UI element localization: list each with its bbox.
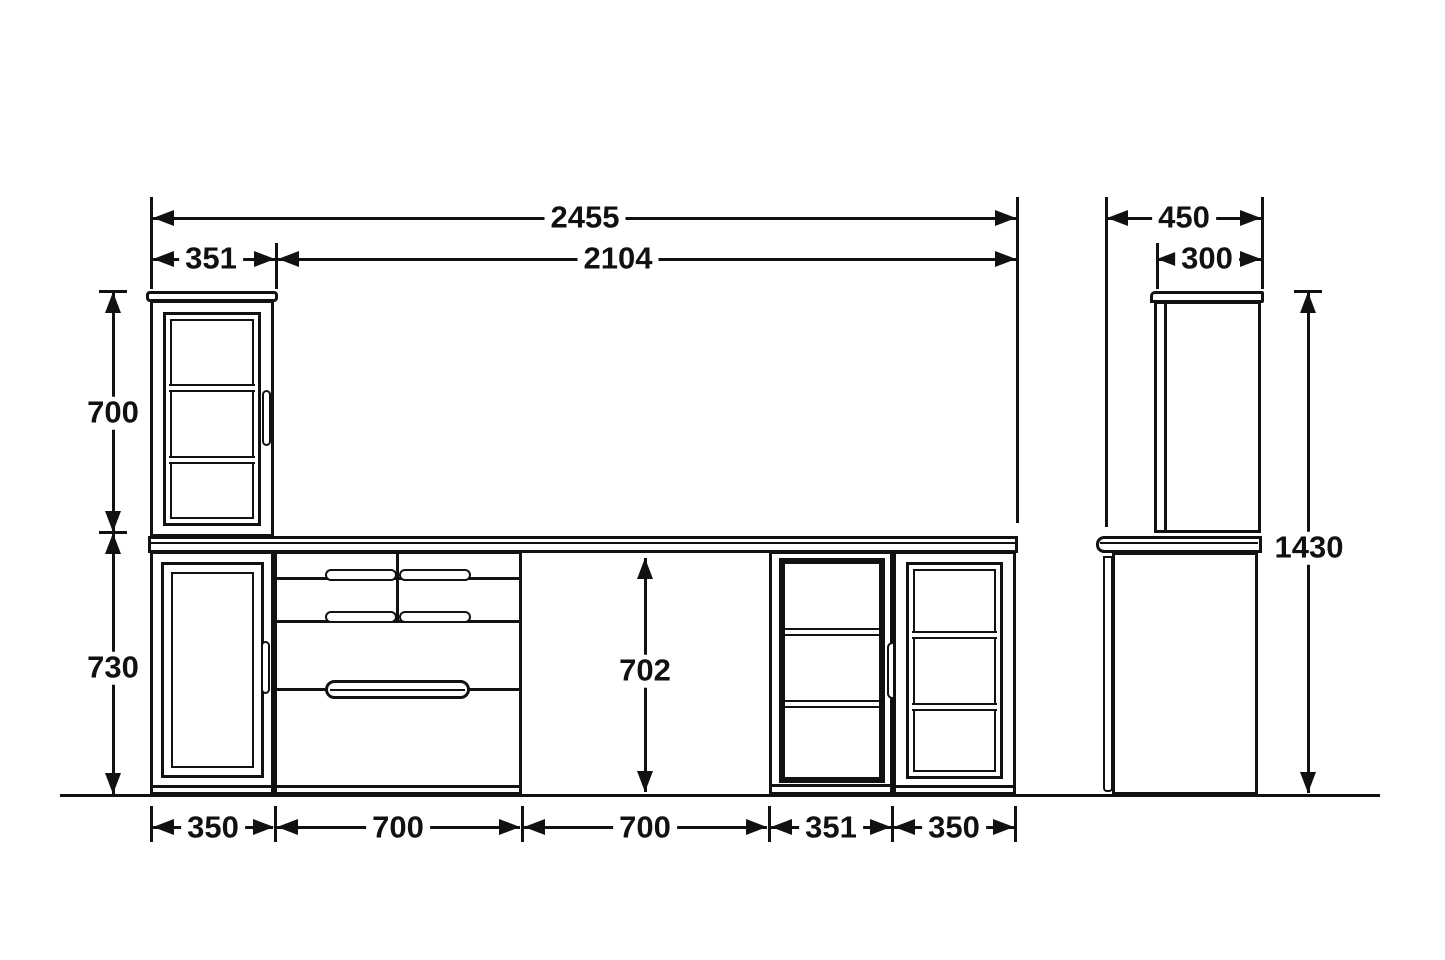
extension-line bbox=[1261, 197, 1264, 289]
arrowhead-up bbox=[105, 292, 121, 313]
arrowhead-down bbox=[105, 511, 121, 532]
drawer-handle bbox=[399, 569, 471, 581]
base-glass-door bbox=[906, 562, 1003, 779]
shelf-unit-door-frame bbox=[779, 558, 885, 783]
shelf-line bbox=[785, 628, 879, 636]
side-base-panel bbox=[1112, 552, 1258, 795]
drawer-handle bbox=[399, 611, 471, 623]
arrowhead-right bbox=[993, 819, 1014, 835]
handle-detail-line bbox=[330, 689, 465, 691]
arrowhead-left bbox=[153, 251, 174, 267]
door-panel-frame bbox=[171, 572, 254, 768]
countertop-edge-line bbox=[151, 542, 1015, 544]
arrowhead-right bbox=[746, 819, 767, 835]
dim-lower-height-label: 730 bbox=[81, 652, 145, 685]
arrowhead-left bbox=[1107, 210, 1128, 226]
dim-bottom-segment-label: 350 bbox=[181, 812, 245, 845]
glass-muntin bbox=[912, 631, 997, 639]
plinth-line bbox=[772, 784, 890, 787]
side-door-edge-line bbox=[1164, 304, 1167, 530]
base-cabinet-door bbox=[161, 562, 264, 778]
dim-bottom-segment-label: 700 bbox=[366, 812, 430, 845]
arrowhead-up bbox=[637, 558, 653, 579]
side-front-edge bbox=[1103, 556, 1113, 792]
shelf-line bbox=[785, 700, 879, 708]
dim-bottom-segment-label: 700 bbox=[613, 812, 677, 845]
dim-side-upper-depth-label: 300 bbox=[1175, 243, 1239, 276]
large-drawer-handle bbox=[325, 680, 470, 699]
arrowhead-right bbox=[499, 819, 520, 835]
drawer-handle bbox=[325, 611, 397, 623]
extension-tick bbox=[1014, 806, 1017, 842]
arrowhead-right bbox=[870, 819, 891, 835]
arrowhead-down bbox=[637, 771, 653, 792]
arrowhead-left bbox=[771, 819, 792, 835]
glass-door-bevel-frame bbox=[170, 319, 254, 519]
dim-bottom-segment-label: 350 bbox=[922, 812, 986, 845]
drawer-handle bbox=[325, 569, 397, 581]
arrowhead-right bbox=[1240, 210, 1261, 226]
technical-drawing-canvas: 702 2455 2104 351 700 730 bbox=[0, 0, 1445, 960]
arrowhead-right bbox=[995, 210, 1016, 226]
side-countertop-edge-line bbox=[1100, 542, 1258, 544]
glass-muntin bbox=[169, 456, 255, 464]
dim-bottom-segment-label: 351 bbox=[799, 812, 863, 845]
dim-overall-height-label: 1430 bbox=[1269, 532, 1350, 565]
glass-muntin bbox=[912, 703, 997, 711]
arrowhead-right bbox=[1240, 251, 1261, 267]
arrowhead-left bbox=[153, 819, 174, 835]
dim-upper-height-label: 700 bbox=[81, 397, 145, 430]
arrowhead-down bbox=[105, 773, 121, 794]
side-countertop bbox=[1096, 536, 1262, 553]
arrowhead-right bbox=[254, 251, 275, 267]
upper-cabinet-glass-door bbox=[163, 312, 261, 526]
plinth-line bbox=[277, 785, 519, 788]
glass-muntin bbox=[169, 384, 255, 392]
plinth-line bbox=[896, 785, 1013, 788]
extension-line bbox=[1105, 197, 1108, 527]
plinth-line bbox=[153, 785, 271, 788]
arrowhead-left bbox=[278, 251, 299, 267]
glass-door-bevel-frame bbox=[913, 569, 996, 772]
arrowhead-right bbox=[253, 819, 274, 835]
arrowhead-up bbox=[105, 533, 121, 554]
arrowhead-up bbox=[1300, 292, 1316, 313]
extension-line bbox=[1016, 197, 1019, 523]
arrowhead-down bbox=[1300, 772, 1316, 793]
dim-upper-cabinet-width-label: 351 bbox=[179, 243, 243, 276]
arrowhead-left bbox=[277, 819, 298, 835]
drawer-center-divider bbox=[396, 554, 399, 623]
arrowhead-right bbox=[995, 251, 1016, 267]
arrowhead-left bbox=[894, 819, 915, 835]
arrowhead-left bbox=[524, 819, 545, 835]
dim-span-right-label: 2104 bbox=[578, 243, 659, 276]
dim-opening-height-label: 702 bbox=[613, 655, 677, 688]
side-upper-panel bbox=[1154, 301, 1261, 533]
dim-side-depth-label: 450 bbox=[1152, 202, 1216, 235]
door-handle bbox=[261, 641, 270, 694]
door-handle bbox=[262, 390, 271, 446]
dim-total-width-label: 2455 bbox=[545, 202, 626, 235]
arrowhead-left bbox=[153, 210, 174, 226]
